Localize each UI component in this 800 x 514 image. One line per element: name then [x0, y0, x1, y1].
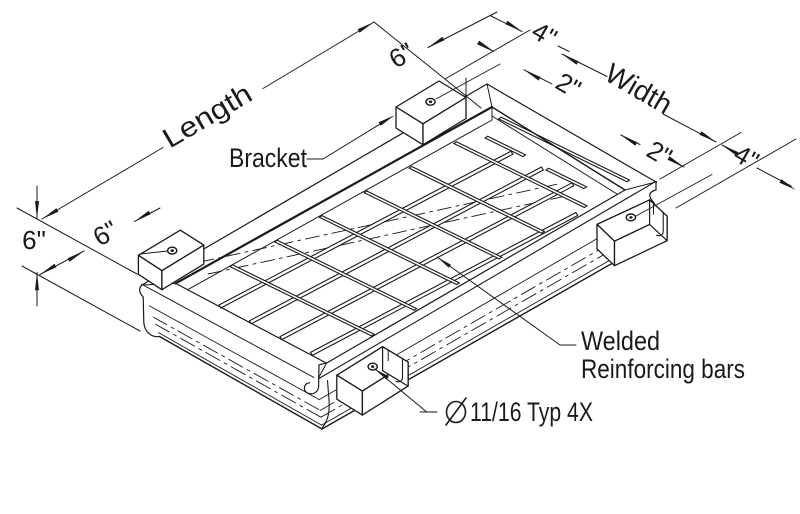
- svg-text:6": 6": [22, 225, 46, 255]
- svg-text:Welded: Welded: [581, 326, 660, 356]
- svg-text:Reinforcing bars: Reinforcing bars: [581, 354, 745, 384]
- svg-text:Bracket: Bracket: [229, 143, 307, 173]
- svg-text:11/16 Typ 4X: 11/16 Typ 4X: [470, 397, 593, 427]
